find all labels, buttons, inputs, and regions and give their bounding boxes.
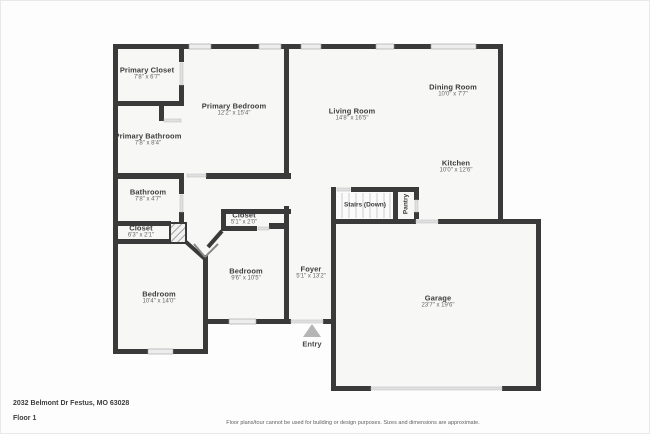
floor-plan-drawing bbox=[1, 1, 650, 434]
entry-label: Entry bbox=[302, 340, 321, 349]
pantry-label: Pantry bbox=[403, 194, 410, 214]
disclaimer-text: Floor plans/tour cannot be used for buil… bbox=[226, 420, 479, 426]
floor-number: Floor 1 bbox=[13, 415, 36, 422]
stairs-label: Stairs (Down) bbox=[344, 202, 386, 209]
entry-arrow-icon bbox=[303, 324, 321, 337]
floor-plan-page: Primary Closet 7'8" x 6'7" Primary Bathr… bbox=[0, 0, 650, 434]
property-address: 2032 Belmont Dr Festus, MO 63028 bbox=[13, 400, 129, 407]
floor-area bbox=[113, 44, 539, 389]
hatched-door-panel bbox=[170, 223, 186, 243]
